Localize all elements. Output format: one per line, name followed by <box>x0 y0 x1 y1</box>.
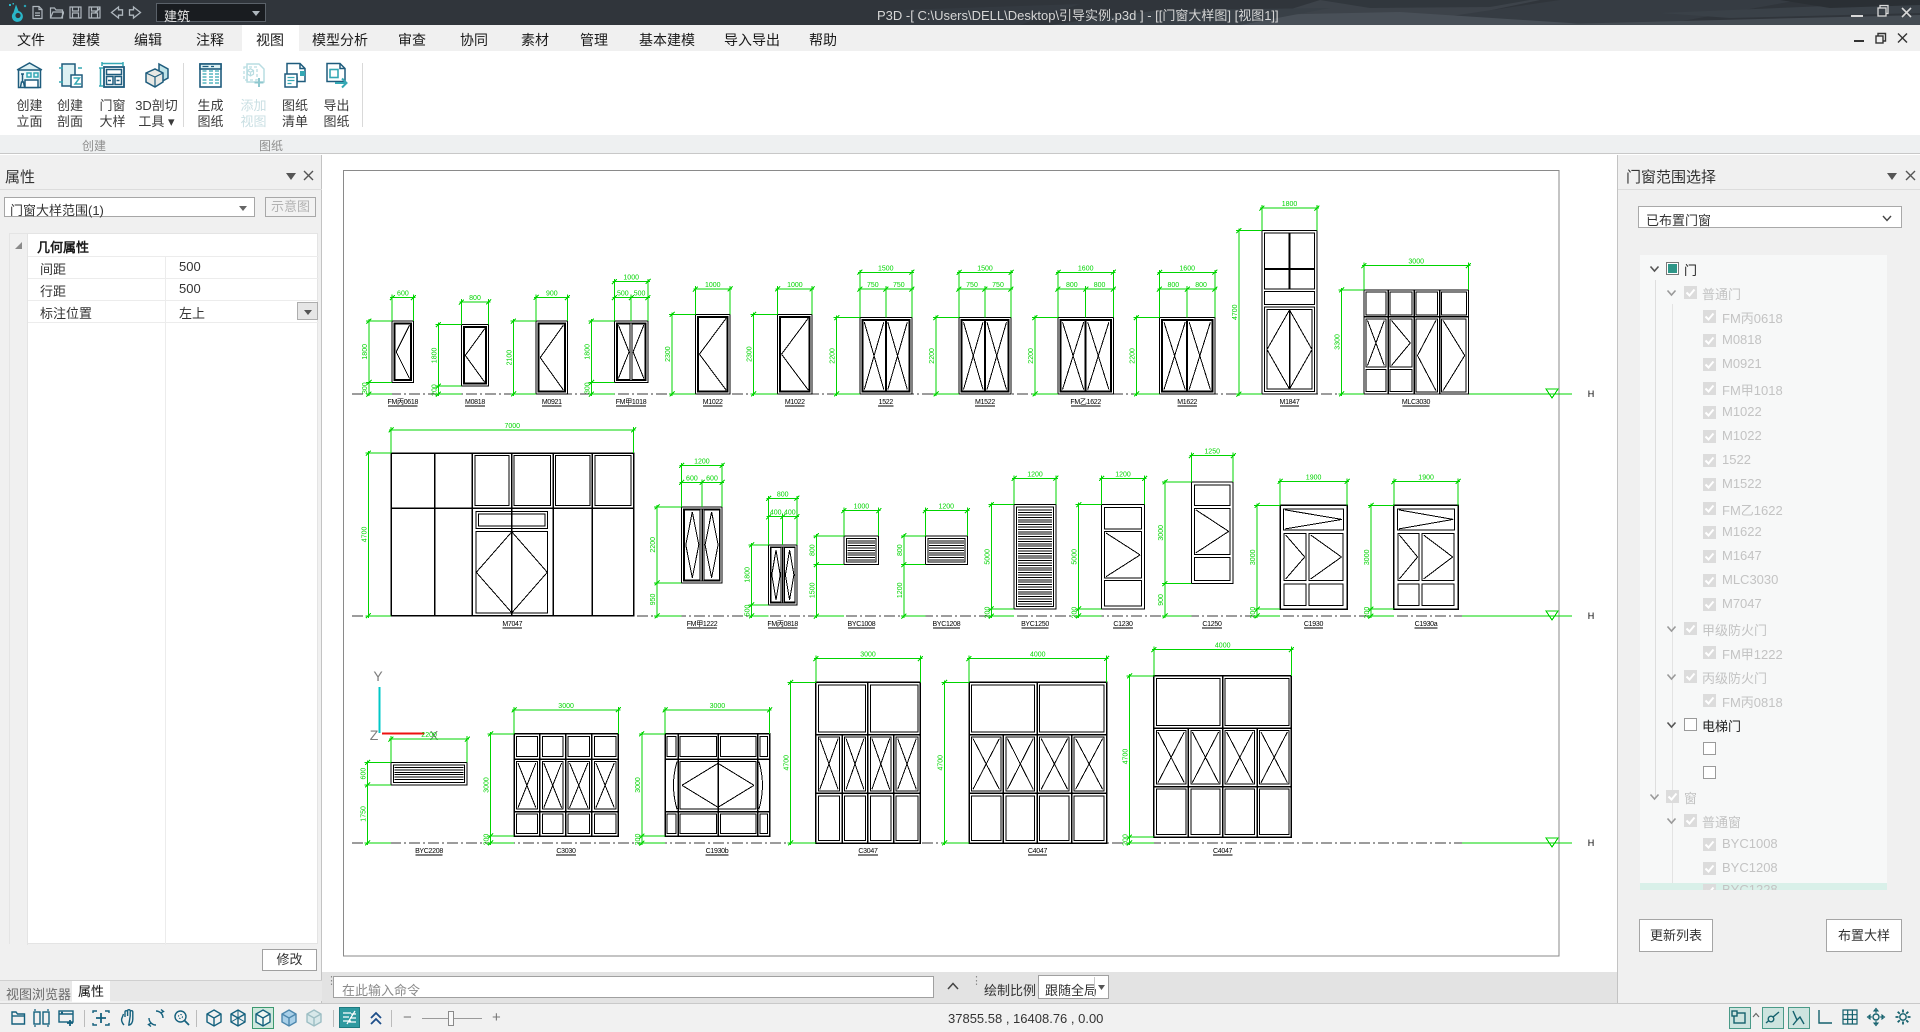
svg-text:2200: 2200 <box>1130 348 1137 364</box>
svg-text:2100: 2100 <box>507 350 514 366</box>
svg-text:H: H <box>1588 611 1595 621</box>
svg-text:1800: 1800 <box>584 344 591 360</box>
svg-text:M1622: M1622 <box>1177 399 1197 406</box>
svg-text:4700: 4700 <box>1232 304 1239 320</box>
svg-text:750: 750 <box>867 282 879 289</box>
svg-text:1900: 1900 <box>1306 475 1322 482</box>
svg-text:M1522: M1522 <box>975 399 995 406</box>
svg-text:5000: 5000 <box>1072 549 1079 565</box>
svg-text:BYC2208: BYC2208 <box>415 848 443 855</box>
svg-text:750: 750 <box>966 282 978 289</box>
svg-text:2200: 2200 <box>830 348 837 364</box>
svg-text:FM丙0818: FM丙0818 <box>767 620 798 628</box>
svg-text:3000: 3000 <box>860 652 876 659</box>
svg-text:C1250: C1250 <box>1202 621 1222 628</box>
svg-text:750: 750 <box>893 282 905 289</box>
svg-text:C4047: C4047 <box>1028 848 1048 855</box>
svg-text:1800: 1800 <box>362 344 369 360</box>
svg-text:BYC1208: BYC1208 <box>932 621 960 628</box>
svg-text:5000: 5000 <box>984 549 991 565</box>
svg-text:M7047: M7047 <box>502 621 522 628</box>
svg-text:1800: 1800 <box>431 348 438 364</box>
svg-text:BYC1250: BYC1250 <box>1021 621 1049 628</box>
svg-text:3000: 3000 <box>1250 549 1257 565</box>
svg-text:3000: 3000 <box>1364 549 1371 565</box>
svg-text:1000: 1000 <box>623 275 639 282</box>
svg-text:4700: 4700 <box>784 755 791 771</box>
svg-text:1200: 1200 <box>897 582 904 598</box>
svg-text:M0818: M0818 <box>465 399 485 406</box>
svg-text:3000: 3000 <box>710 703 726 710</box>
svg-text:C1930a: C1930a <box>1415 621 1438 628</box>
svg-text:1500: 1500 <box>977 265 993 272</box>
svg-text:400: 400 <box>770 510 782 517</box>
svg-text:3000: 3000 <box>1158 525 1165 541</box>
svg-text:1200: 1200 <box>1115 471 1131 478</box>
svg-text:800: 800 <box>1094 282 1106 289</box>
svg-text:3000: 3000 <box>1408 259 1424 266</box>
svg-text:BYC1008: BYC1008 <box>847 621 875 628</box>
svg-text:FM乙1622: FM乙1622 <box>1070 398 1101 406</box>
svg-text:600: 600 <box>397 291 409 298</box>
svg-text:4700: 4700 <box>361 527 368 543</box>
svg-text:1500: 1500 <box>809 582 816 598</box>
svg-text:800: 800 <box>1066 282 1078 289</box>
svg-text:1200: 1200 <box>694 458 710 465</box>
svg-text:H: H <box>1588 838 1595 848</box>
svg-text:C1930b: C1930b <box>706 848 729 855</box>
svg-text:1500: 1500 <box>878 265 894 272</box>
svg-text:FM甲1222: FM甲1222 <box>687 620 718 628</box>
svg-text:C3030: C3030 <box>556 848 576 855</box>
svg-text:2300: 2300 <box>747 346 754 362</box>
svg-text:1900: 1900 <box>1418 475 1434 482</box>
svg-text:600: 600 <box>686 475 698 482</box>
svg-text:1600: 1600 <box>1078 265 1094 272</box>
svg-text:4000: 4000 <box>1215 643 1231 650</box>
svg-text:1800: 1800 <box>1282 201 1298 208</box>
svg-text:750: 750 <box>992 282 1004 289</box>
svg-text:800: 800 <box>777 491 789 498</box>
svg-text:FM丙0618: FM丙0618 <box>388 398 419 406</box>
svg-text:4700: 4700 <box>938 755 945 771</box>
svg-text:950: 950 <box>650 593 657 605</box>
svg-text:1000: 1000 <box>787 282 803 289</box>
svg-text:600: 600 <box>361 768 368 780</box>
svg-text:1000: 1000 <box>705 282 721 289</box>
svg-text:7000: 7000 <box>505 423 521 430</box>
svg-text:400: 400 <box>784 510 796 517</box>
svg-text:900: 900 <box>546 291 558 298</box>
svg-text:Z: Z <box>370 727 379 743</box>
svg-text:2300: 2300 <box>665 346 672 362</box>
svg-text:C1930: C1930 <box>1304 621 1324 628</box>
svg-text:3000: 3000 <box>484 777 491 793</box>
svg-text:1200: 1200 <box>939 504 955 511</box>
svg-text:2200: 2200 <box>1028 348 1035 364</box>
svg-text:4700: 4700 <box>1123 749 1130 765</box>
svg-text:1800: 1800 <box>745 567 752 583</box>
svg-text:C4047: C4047 <box>1213 848 1233 855</box>
svg-text:800: 800 <box>1195 282 1207 289</box>
svg-text:M1022: M1022 <box>785 399 805 406</box>
svg-text:1250: 1250 <box>1204 449 1220 456</box>
svg-text:C3047: C3047 <box>858 848 878 855</box>
svg-text:500: 500 <box>634 291 646 298</box>
svg-text:600: 600 <box>706 475 718 482</box>
svg-text:MLC3030: MLC3030 <box>1402 399 1431 406</box>
svg-text:1200: 1200 <box>1027 471 1043 478</box>
svg-text:M0921: M0921 <box>542 399 562 406</box>
svg-text:3300: 3300 <box>1335 334 1342 350</box>
svg-text:2200: 2200 <box>421 732 437 739</box>
svg-text:FM甲1018: FM甲1018 <box>616 398 647 406</box>
svg-text:H: H <box>1588 389 1595 399</box>
svg-text:1600: 1600 <box>1179 265 1195 272</box>
svg-text:1522: 1522 <box>879 399 894 406</box>
svg-text:M1022: M1022 <box>703 399 723 406</box>
svg-text:Y: Y <box>373 668 383 684</box>
svg-text:800: 800 <box>897 544 904 556</box>
svg-text:2200: 2200 <box>929 348 936 364</box>
svg-text:900: 900 <box>1158 594 1165 606</box>
svg-text:500: 500 <box>617 291 629 298</box>
svg-text:2200: 2200 <box>650 537 657 553</box>
svg-text:3000: 3000 <box>558 703 574 710</box>
svg-text:4000: 4000 <box>1030 652 1046 659</box>
svg-text:1000: 1000 <box>854 504 870 511</box>
svg-text:3000: 3000 <box>635 777 642 793</box>
svg-text:800: 800 <box>809 544 816 556</box>
svg-text:C1230: C1230 <box>1113 621 1133 628</box>
svg-text:800: 800 <box>469 295 481 302</box>
svg-text:M1847: M1847 <box>1280 399 1300 406</box>
svg-text:800: 800 <box>1167 282 1179 289</box>
svg-text:1750: 1750 <box>361 806 368 822</box>
